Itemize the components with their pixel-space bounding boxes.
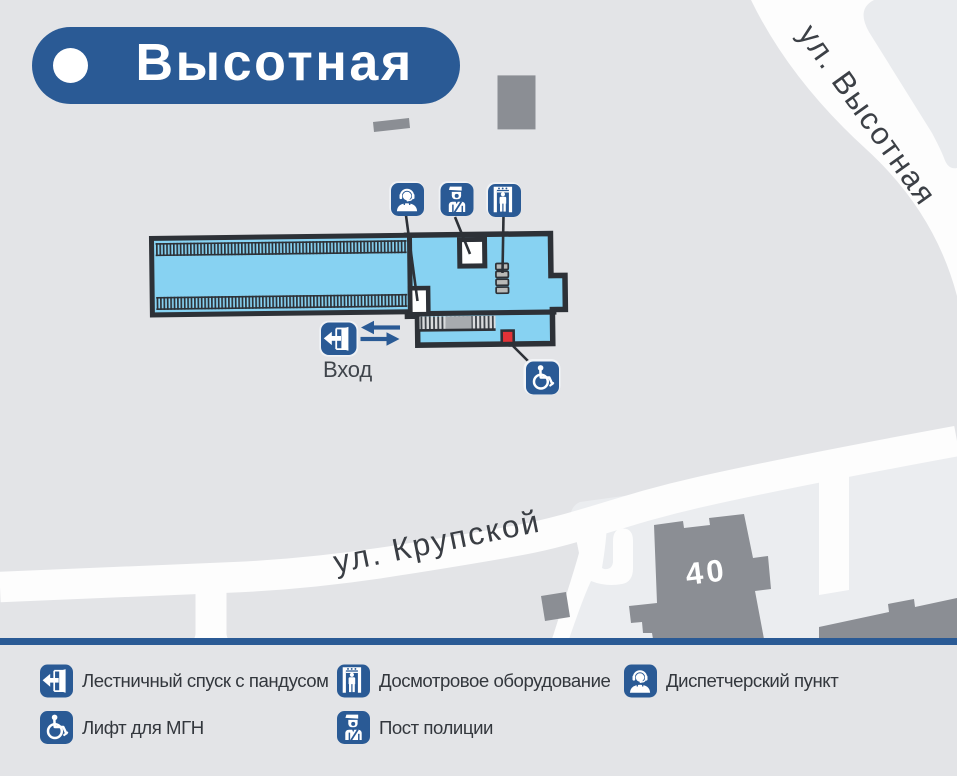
svg-text:40: 40	[684, 552, 729, 592]
